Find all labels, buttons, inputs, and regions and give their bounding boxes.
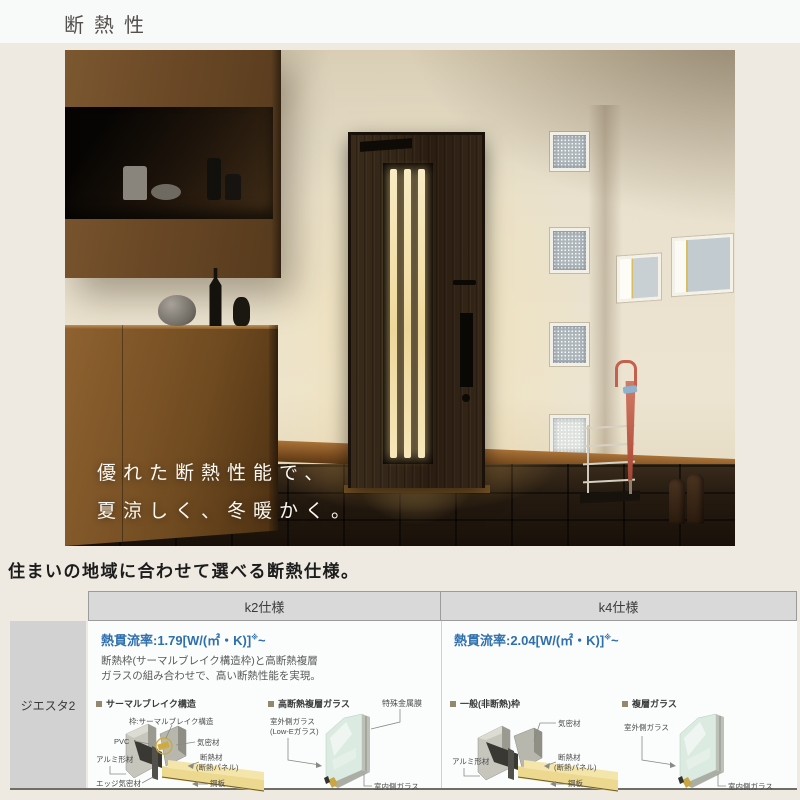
- k4-frame-title-text: 一般(非断熱)枠: [460, 699, 520, 709]
- entrance-door: [348, 132, 485, 488]
- section-heading: 住まいの地域に合わせて選べる断熱仕様。: [8, 557, 360, 582]
- k4-frame-diagram-title: 一般(非断熱)枠: [450, 697, 520, 710]
- u-value-k2-note: ※: [251, 635, 258, 642]
- open-shelf: [65, 107, 273, 219]
- door-closer: [360, 138, 412, 152]
- bullet-square-icon: [96, 701, 102, 707]
- shelf-bottle: [207, 158, 221, 200]
- boot-right: [687, 474, 704, 524]
- hero-caption-line1: 優れた断熱性能で、: [97, 458, 330, 485]
- bullet-square-icon: [268, 701, 274, 707]
- door-glass-panel: [383, 163, 433, 464]
- label-edge-seal: エッジ気密材: [96, 778, 141, 788]
- leader-line: [642, 736, 674, 765]
- u-value-k2: 熱貫流率:1.79[W/(㎡・K)]※~: [101, 630, 266, 649]
- shelf-jar: [225, 174, 241, 200]
- table-header-k2: k2仕様: [88, 591, 441, 621]
- u-value-k4-note: ※: [604, 635, 611, 642]
- k2-frame-title-text: サーマルブレイク構造: [106, 699, 196, 709]
- leader-line: [371, 709, 400, 729]
- bullet-square-icon: [450, 701, 456, 707]
- label-airtight: 気密材: [558, 718, 581, 728]
- label-insulation2: (断熱パネル): [196, 762, 239, 772]
- leader-line: [464, 768, 480, 776]
- bullet-square-icon: [622, 701, 628, 707]
- far-window-2: [672, 234, 733, 296]
- u-value-k4: 熱貫流率:2.04[W/(㎡・K)]※~: [454, 630, 619, 649]
- label-outer-glass: 室外側ガラス: [270, 716, 315, 726]
- leader-arrow: [316, 762, 322, 768]
- leader-line: [364, 774, 372, 786]
- glass-slit-2: [404, 169, 411, 458]
- label-pvc: PVC: [114, 737, 130, 746]
- leader-line: [142, 777, 153, 783]
- door-thumb-turn: [462, 394, 470, 402]
- label-aluminum: アルミ形材: [96, 754, 134, 764]
- frosted-window-1: [550, 132, 589, 171]
- small-vase: [233, 297, 250, 326]
- u-value-k2-text: 熱貫流率:1.79[W/(㎡・K)]: [101, 633, 251, 648]
- table-row-label: ジエスタ2: [10, 621, 86, 789]
- label-steel: 鋼板: [568, 778, 583, 788]
- u-value-k4-text: 熱貫流率:2.04[W/(㎡・K)]: [454, 633, 604, 648]
- label-aluminum: アルミ形材: [452, 756, 490, 766]
- shelf-bowl: [151, 184, 181, 200]
- table-column-divider: [441, 621, 442, 789]
- label-insulation1: 断熱材: [558, 752, 581, 762]
- stand-post: [587, 425, 589, 493]
- k2-glass-diagram: 室外側ガラス (Low-Eガラス) 室内側ガラス: [268, 708, 438, 792]
- leader-arrow: [670, 762, 676, 768]
- k4-frame-diagram: 気密材 アルミ形材 断熱材 (断熱パネル) 鋼板: [450, 716, 618, 792]
- stand-wire: [583, 479, 635, 484]
- table-header-k4: k4仕様: [440, 591, 797, 621]
- leader-line: [288, 738, 320, 765]
- label-insulation1: 断熱材: [200, 752, 223, 762]
- center-bar: [508, 748, 514, 780]
- label-inner-glass: 室内側ガラス: [728, 781, 773, 791]
- k4-glass-diagram: 室外側ガラス 室内側ガラス: [622, 708, 794, 792]
- thermal-break-highlight: [156, 738, 172, 754]
- stand-wire: [583, 461, 635, 466]
- umbrella-handle: [615, 360, 637, 387]
- k2-frame-diagram: 枠:サーマルブレイク構造 PVC 気密材 アルミ形材 断熱材 (断熱パネル) エ…: [96, 716, 264, 792]
- label-steel: 鋼板: [210, 778, 225, 788]
- label-lowe-glass: (Low-Eガラス): [270, 726, 319, 736]
- label-outer-glass: 室外側ガラス: [624, 722, 669, 732]
- glass-slit-3: [418, 169, 425, 458]
- label-insulation2: (断熱パネル): [554, 762, 597, 772]
- round-vase: [158, 295, 196, 326]
- leader-line: [718, 774, 726, 786]
- stand-wire: [583, 443, 635, 448]
- shelf-cup: [123, 166, 147, 200]
- hero-photo: 優れた断熱性能で、 夏涼しく、冬暖かく。: [65, 50, 735, 546]
- door-handle: [453, 280, 476, 285]
- glass-slit-1: [390, 169, 397, 458]
- label-thermal-break: 枠:サーマルブレイク構造: [129, 716, 214, 726]
- label-inner-glass: 室内側ガラス: [374, 781, 419, 791]
- umbrella-tip: [629, 480, 632, 494]
- leader-line: [110, 766, 126, 774]
- u-value-k4-range: ~: [611, 633, 619, 648]
- k2-description-line1: 断熱枠(サーマルブレイク構造枠)と高断熱複層: [101, 654, 318, 669]
- door-lock-plate: [460, 313, 473, 387]
- frosted-window-2: [550, 228, 589, 273]
- far-window-1: [617, 253, 661, 302]
- k2-description-line2: ガラスの組み合わせで、高い断熱性能を実現。: [101, 669, 321, 684]
- u-value-k2-range: ~: [258, 633, 266, 648]
- frosted-window-3: [550, 323, 589, 366]
- hero-caption-line2: 夏涼しく、冬暖かく。: [97, 496, 357, 523]
- label-airtight: 気密材: [197, 737, 220, 747]
- boot-left: [669, 479, 685, 524]
- page-title: 断熱性: [64, 9, 154, 38]
- k2-frame-diagram-title: サーマルブレイク構造: [96, 697, 196, 710]
